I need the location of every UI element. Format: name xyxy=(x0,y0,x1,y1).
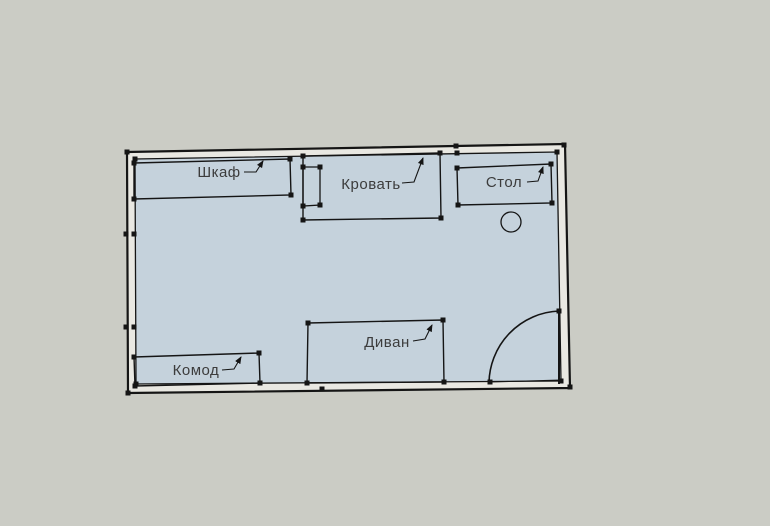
wall-endpoint-marker xyxy=(124,232,129,237)
desk-corner-marker xyxy=(550,201,555,206)
bed-pillow-corner-marker xyxy=(318,203,323,208)
wall-endpoint-marker xyxy=(559,379,564,384)
bed-pillow-corner-marker xyxy=(301,165,306,170)
desk-corner-marker xyxy=(455,166,460,171)
wall-endpoint-marker xyxy=(132,325,137,330)
desk-corner-marker xyxy=(549,162,554,167)
floor-plan: ШкафКроватьСтолДиванКомод xyxy=(0,0,770,526)
wall-endpoint-marker xyxy=(124,325,129,330)
wall-endpoint-marker xyxy=(557,309,562,314)
wall-endpoint-marker xyxy=(132,232,137,237)
sofa-corner-marker xyxy=(442,380,447,385)
desk-label[interactable]: Стол xyxy=(486,174,522,191)
dresser-corner-marker xyxy=(132,355,137,360)
bed-pillow-corner-marker xyxy=(301,204,306,209)
wardrobe-corner-marker xyxy=(289,193,294,198)
sofa-corner-marker xyxy=(305,381,310,386)
wall-endpoint-marker xyxy=(125,150,130,155)
wall-endpoint-marker xyxy=(488,380,493,385)
dresser-corner-marker xyxy=(258,381,263,386)
wardrobe-corner-marker xyxy=(132,197,137,202)
sofa-corner-marker xyxy=(441,318,446,323)
bed-corner-marker xyxy=(301,218,306,223)
wardrobe-corner-marker xyxy=(288,157,293,162)
bed-label[interactable]: Кровать xyxy=(341,176,400,193)
sofa-label[interactable]: Диван xyxy=(364,334,409,351)
bed-pillow-corner-marker xyxy=(318,165,323,170)
dresser-label[interactable]: Комод xyxy=(173,362,220,379)
wardrobe-label[interactable]: Шкаф xyxy=(197,164,240,181)
dresser-corner-marker xyxy=(257,351,262,356)
wall-endpoint-marker xyxy=(455,151,460,156)
bed-corner-marker xyxy=(438,151,443,156)
wall-endpoint-marker xyxy=(320,387,325,392)
wall-endpoint-marker xyxy=(134,382,139,387)
bed-corner-marker xyxy=(439,216,444,221)
sofa-corner-marker xyxy=(306,321,311,326)
drawing-canvas[interactable]: ШкафКроватьСтолДиванКомод xyxy=(0,0,770,526)
wall-endpoint-marker xyxy=(562,143,567,148)
wall-endpoint-marker xyxy=(568,385,573,390)
desk-corner-marker xyxy=(456,203,461,208)
wall-endpoint-marker xyxy=(555,150,560,155)
wall-endpoint-marker xyxy=(454,144,459,149)
wall-endpoint-marker xyxy=(126,391,131,396)
wall-endpoint-marker xyxy=(133,157,138,162)
bed-corner-marker xyxy=(301,154,306,159)
